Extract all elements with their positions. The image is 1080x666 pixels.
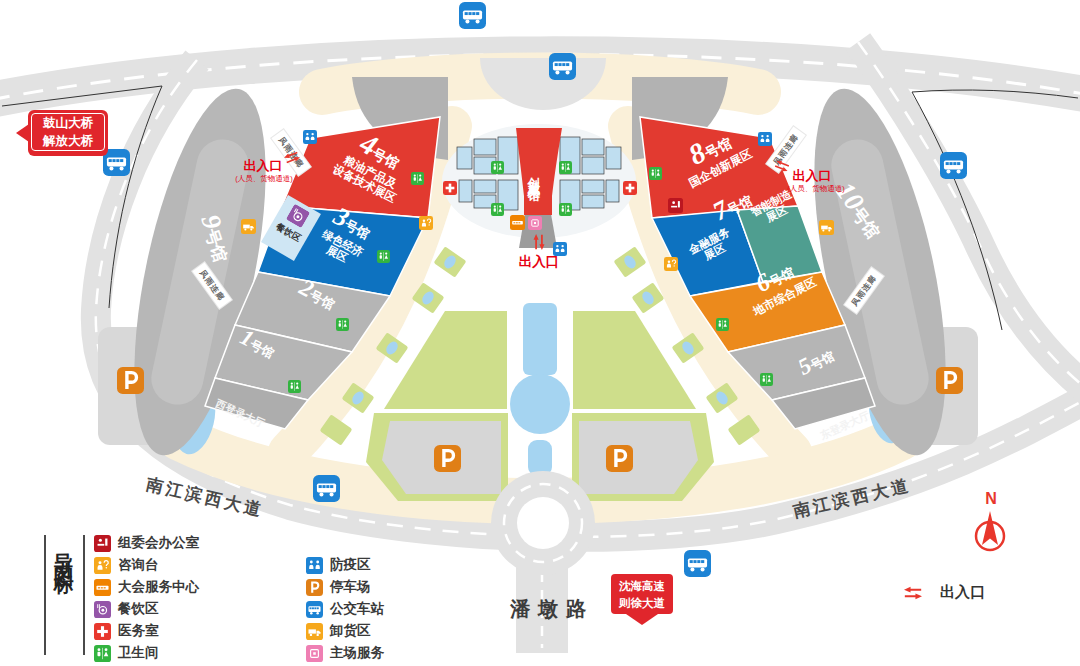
roundabout (491, 471, 595, 653)
legend-item-parking: 停车场 (306, 578, 371, 596)
legend-item-dining: 餐饮区 (94, 600, 159, 618)
legend-label: 餐饮区 (118, 600, 159, 618)
bus-station-icon (306, 601, 323, 618)
legend-item-medical: 医务室 (94, 622, 159, 640)
legend-label: 主场服务 (330, 644, 384, 662)
innovation-hall-label: 创新成果馆 (525, 136, 542, 212)
toilet-icon (491, 161, 504, 174)
highway-direction-box: 沈海高速 则徐大道 (611, 574, 673, 614)
legend-item-toilet: 卫生间 (94, 644, 159, 662)
unloading-icon (306, 623, 323, 640)
legend-label: 大会服务中心 (118, 578, 199, 596)
dining-icon (94, 601, 111, 618)
toilet-icon (559, 161, 572, 174)
exit-legend-label: 出入口 (940, 583, 985, 602)
legend-label: 咨询台 (118, 556, 159, 574)
parking-icon (434, 445, 461, 472)
compass-icon (968, 508, 1012, 556)
legend-label: 停车场 (330, 578, 371, 596)
legend-label: 组委会办公室 (118, 534, 199, 552)
medical-icon (443, 181, 457, 195)
legend-item-committee: 组委会办公室 (94, 534, 199, 552)
median-halfdisc (480, 58, 606, 110)
toilet-icon (559, 203, 572, 216)
service-center-icon (510, 215, 525, 230)
legend-label: 公交车站 (330, 600, 384, 618)
exit-legend-arrows-icon (893, 584, 933, 602)
quarantine-icon (306, 557, 323, 574)
legend-title: 导引图标 (44, 535, 85, 655)
parking-icon (306, 579, 323, 596)
exhibition-map: 4号馆 粮油产品及 设备技术展区 3号馆 绿色经济 展区 2号馆 1号馆 西登录… (0, 0, 1080, 666)
entrance-west-note: (人员、货物通道) (220, 175, 308, 183)
bus-station-icon (940, 152, 967, 179)
toilet-icon (491, 203, 504, 216)
service-center-icon (94, 579, 111, 596)
highway-direction-label: 沈海高速 则徐大道 (611, 574, 673, 611)
entrance-south-label: 出入口 (511, 254, 567, 269)
ribbon-tail (626, 614, 658, 625)
toilet-icon (288, 380, 301, 393)
left-arrow-icon (16, 124, 29, 142)
central-water (510, 303, 570, 476)
committee-icon (94, 535, 111, 552)
legend-item-quarantine: 防疫区 (306, 556, 371, 574)
legend-item-unloading: 卸货区 (306, 622, 371, 640)
bridge-direction-label: 鼓山大桥 解放大桥 (31, 113, 105, 151)
toilet-icon (94, 645, 111, 662)
entrance-west-label: 出入口 (237, 159, 289, 174)
entrance-east-note: (人员、货物通道) (775, 185, 857, 193)
dining-icon (286, 204, 311, 229)
entrance-east-label: 出入口 (787, 169, 837, 184)
bus-station-icon (684, 550, 711, 577)
legend-item-info-desk: 咨询台 (94, 556, 159, 574)
parking-icon (117, 367, 144, 394)
legend-item-host-service: 主场服务 (306, 644, 384, 662)
legend-label: 卸货区 (330, 622, 371, 640)
entrance-arrows-icon (531, 231, 547, 253)
bridge-direction-box: 鼓山大桥 解放大桥 (28, 110, 108, 156)
parking-icon (606, 445, 633, 472)
host-service-icon (306, 645, 323, 662)
parking-icon (936, 367, 963, 394)
map-canvas (0, 0, 1080, 666)
legend-item-service-center: 大会服务中心 (94, 578, 199, 596)
legend-label: 卫生间 (118, 644, 159, 662)
compass-n-label: N (976, 490, 1006, 508)
info-desk-icon (94, 557, 111, 574)
legend-item-bus-station: 公交车站 (306, 600, 384, 618)
bus-station-icon (459, 2, 486, 29)
bus-station-icon (549, 53, 576, 80)
bus-station-icon (313, 475, 340, 502)
legend-label: 防疫区 (330, 556, 371, 574)
legend-label: 医务室 (118, 622, 159, 640)
medical-icon (94, 623, 111, 640)
host-service-icon (528, 216, 542, 230)
medical-icon (623, 181, 637, 195)
road-south-label: 潘墩路 (492, 596, 612, 623)
